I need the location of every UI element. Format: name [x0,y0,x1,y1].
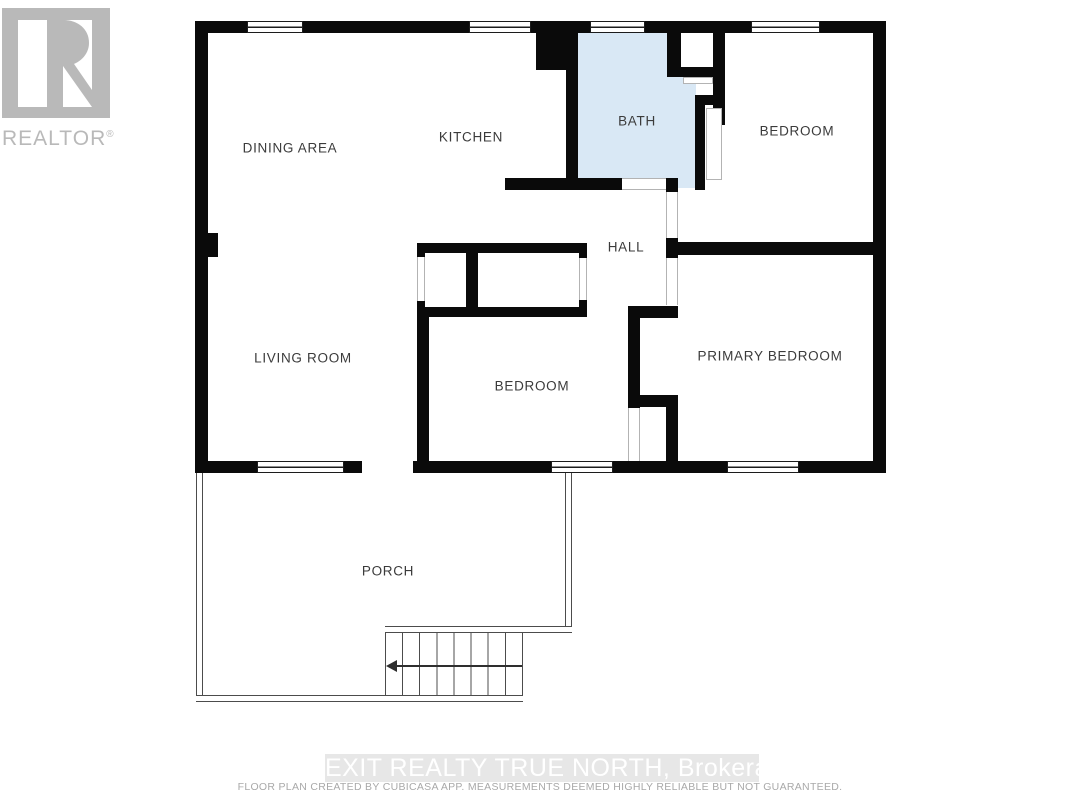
disclaimer-text: FLOOR PLAN CREATED BY CUBICASA APP. MEAS… [0,781,1080,793]
wall-kitchen-bath [566,70,578,190]
porch-wall-right [565,473,572,631]
floor-plan-canvas: REALTOR® [0,0,1080,810]
wall-bedroom-primary-divider [678,242,886,255]
room-label-hall: HALL [608,240,645,255]
door-opening-bedroom2 [666,192,678,238]
wall-hall-right-mid [666,238,678,258]
wall-closet-right [666,395,678,463]
door-opening-bath [622,178,666,190]
window-livingroom [257,461,344,473]
room-label-primary-bedroom: PRIMARY BEDROOM [697,349,842,364]
porch-stair-top-wall [385,626,572,633]
bedroom2-door-leaf [706,108,722,180]
wall-bath-bottom [578,178,622,190]
closet-opening-right [579,258,587,300]
wall-closetblock-bottom [417,307,587,317]
wall-chimney-block [536,27,578,70]
wall-hall-right-top [666,178,678,192]
room-label-bath: BATH [618,114,656,129]
wall-closetblock-left-jamb-bottom [417,301,425,317]
room-label-bedroom-top: BEDROOM [760,124,835,139]
wall-kitchen-bottom [505,178,570,190]
room-label-living-room: LIVING ROOM [254,351,352,366]
window-primary-bedroom [727,461,799,473]
wall-closetblock-left-jamb-top [417,243,425,257]
wall-closetblock-right-jamb-top [579,243,587,258]
wall-bath-right [695,105,705,190]
realtor-watermark: REALTOR® [2,8,132,151]
window-kitchen [469,21,531,33]
niche-door-leaf [683,77,713,84]
door-opening-primary-bedroom [666,258,678,305]
wall-hall-bottom [628,306,678,318]
room-label-porch: PORCH [362,564,414,579]
closet-opening-left [417,257,425,301]
registered-mark: ® [106,129,114,140]
window-bedroom2 [751,21,820,33]
wall-livingroom-bedroom [417,317,429,461]
brokerage-watermark: EXIT REALTY TRUE NORTH, Brokerage [325,754,759,782]
niche-interior [681,33,713,68]
door-opening-porch [362,461,413,473]
porch-stairs [385,633,523,695]
wall-bath-right-jog [695,95,713,105]
wall-closetblock-right-jamb-bottom [579,300,587,317]
stair-direction-line [397,665,522,667]
window-bedroom3 [551,461,613,473]
window-bath [590,21,645,33]
room-label-kitchen: KITCHEN [439,130,503,145]
wall-closetblock-top [417,243,587,253]
window-dining [247,21,303,33]
room-label-bedroom-bottom: BEDROOM [495,379,570,394]
porch-wall-left [196,473,203,702]
wall-closetblock-divider [466,243,478,317]
realtor-block-r-icon [2,8,110,118]
wall-left-pilaster [208,233,218,257]
closet-opening-bedroom3 [628,408,640,461]
wall-niche-bottom [667,67,713,77]
room-label-dining-area: DINING AREA [243,141,338,156]
stair-direction-arrow-icon [386,660,397,672]
wall-outer-left [195,21,208,473]
porch-wall-bottom [196,695,523,702]
realtor-text: REALTOR® [2,127,132,151]
